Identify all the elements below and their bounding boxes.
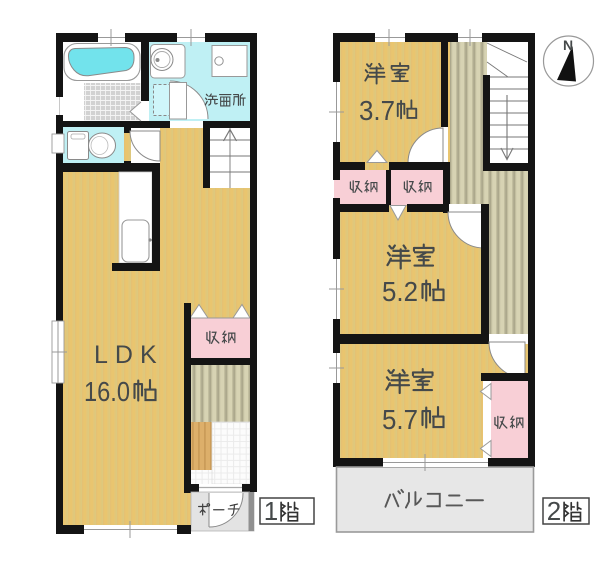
svg-text:5.2: 5.2: [382, 276, 418, 307]
svg-text:1: 1: [264, 496, 278, 526]
svg-text:5.7: 5.7: [382, 404, 418, 435]
svg-text:N: N: [563, 37, 573, 53]
svg-text:2: 2: [547, 496, 561, 526]
svg-text:LDK: LDK: [94, 341, 164, 369]
svg-text:3.7: 3.7: [359, 95, 395, 126]
svg-text:16.0: 16.0: [84, 376, 130, 407]
